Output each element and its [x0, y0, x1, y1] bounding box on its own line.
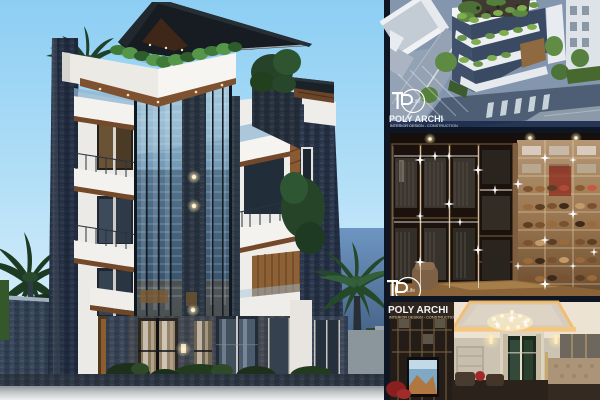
- svg-text:Life: Life: [407, 288, 415, 294]
- svg-text:POLY ARCHI: POLY ARCHI: [388, 305, 448, 316]
- svg-text:INTERIOR DESIGN - CONSTRUCTION: INTERIOR DESIGN - CONSTRUCTION: [389, 316, 457, 320]
- svg-text:Life: Life: [412, 99, 420, 105]
- svg-text:POLY ARCHI: POLY ARCHI: [389, 114, 443, 124]
